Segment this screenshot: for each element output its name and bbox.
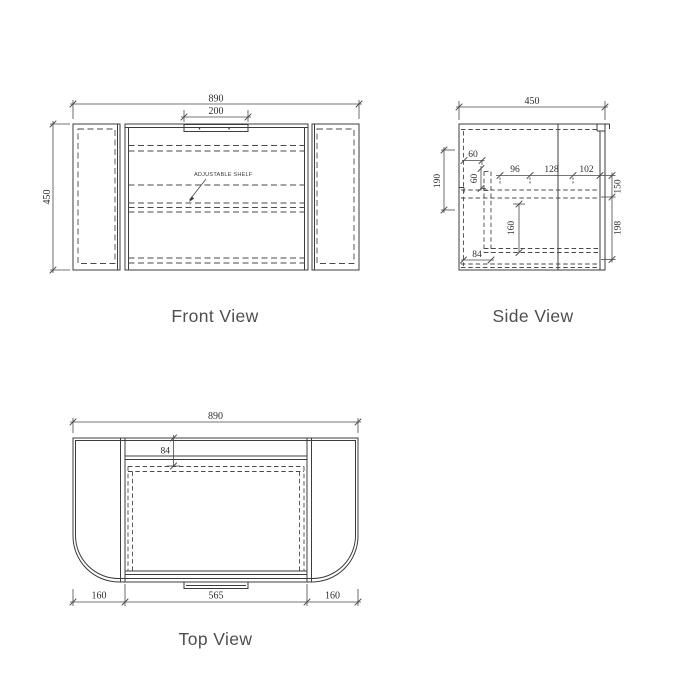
side-dim-drawer-height-value: 160 xyxy=(507,221,517,236)
side-dim-depth: 450 xyxy=(456,96,609,120)
side-dim-right-lower-value: 198 xyxy=(614,221,624,236)
top-view-outline xyxy=(73,438,358,589)
side-dim-depth-value: 450 xyxy=(525,96,540,107)
front-dim-overall-width-value: 890 xyxy=(209,94,224,105)
top-view: 890 84 xyxy=(70,411,362,649)
top-dim-right-wing-value: 160 xyxy=(325,591,340,602)
top-dim-overall-width-value: 890 xyxy=(208,411,223,422)
side-dim-left-height-value: 190 xyxy=(433,174,443,189)
side-dim-right-upper-value: 150 xyxy=(614,179,624,194)
front-dim-handle-width: 200 xyxy=(181,106,252,122)
side-dim-left-height: 190 xyxy=(433,147,455,214)
side-dim-top-inset: 60 xyxy=(461,150,486,165)
top-dim-back-inset: 84 xyxy=(161,435,181,470)
front-dim-height-value: 450 xyxy=(42,190,53,205)
adjustable-shelf-annotation: ADJUSTABLE SHELF xyxy=(189,172,253,202)
side-dim-side-inset-value: 60 xyxy=(470,174,480,184)
side-dim-hinge-spans: 96 128 102 xyxy=(496,165,616,179)
front-view-label: Front View xyxy=(171,306,258,326)
side-dim-bottom-inset: 84 xyxy=(460,250,494,263)
front-view-hidden-lines xyxy=(78,129,354,264)
top-view-hidden-lines xyxy=(128,467,304,572)
drawing-sheet: 890 200 450 ADJUSTABLE SHELF Front View xyxy=(0,0,700,700)
top-dim-center-width-value: 565 xyxy=(209,591,224,602)
top-view-label: Top View xyxy=(179,629,253,649)
side-dim-right-column: 150 198 xyxy=(601,172,624,263)
side-dim-bottom-inset-value: 84 xyxy=(472,250,482,260)
side-view: 450 190 60 60 xyxy=(433,96,624,326)
top-dim-bottom-row: 160 565 160 xyxy=(70,584,362,606)
front-view: 890 200 450 ADJUSTABLE SHELF Front View xyxy=(42,94,362,327)
side-view-hidden-lines xyxy=(461,130,598,268)
top-dim-overall-width: 890 xyxy=(70,411,362,433)
front-dim-height: 450 xyxy=(42,121,70,274)
vanity-technical-drawing: 890 200 450 ADJUSTABLE SHELF Front View xyxy=(0,0,700,700)
side-dim-span-middle-value: 128 xyxy=(544,165,559,175)
side-dim-span-right-value: 102 xyxy=(579,165,594,175)
side-view-label: Side View xyxy=(492,306,573,326)
top-dim-back-inset-value: 84 xyxy=(161,447,171,457)
front-dim-handle-width-value: 200 xyxy=(209,106,224,117)
top-dim-left-wing-value: 160 xyxy=(92,591,107,602)
side-dim-span-left-value: 96 xyxy=(510,165,520,175)
side-dim-drawer-height: 160 xyxy=(507,201,525,256)
adjustable-shelf-label: ADJUSTABLE SHELF xyxy=(194,172,253,178)
side-dim-top-inset-value: 60 xyxy=(468,150,478,160)
